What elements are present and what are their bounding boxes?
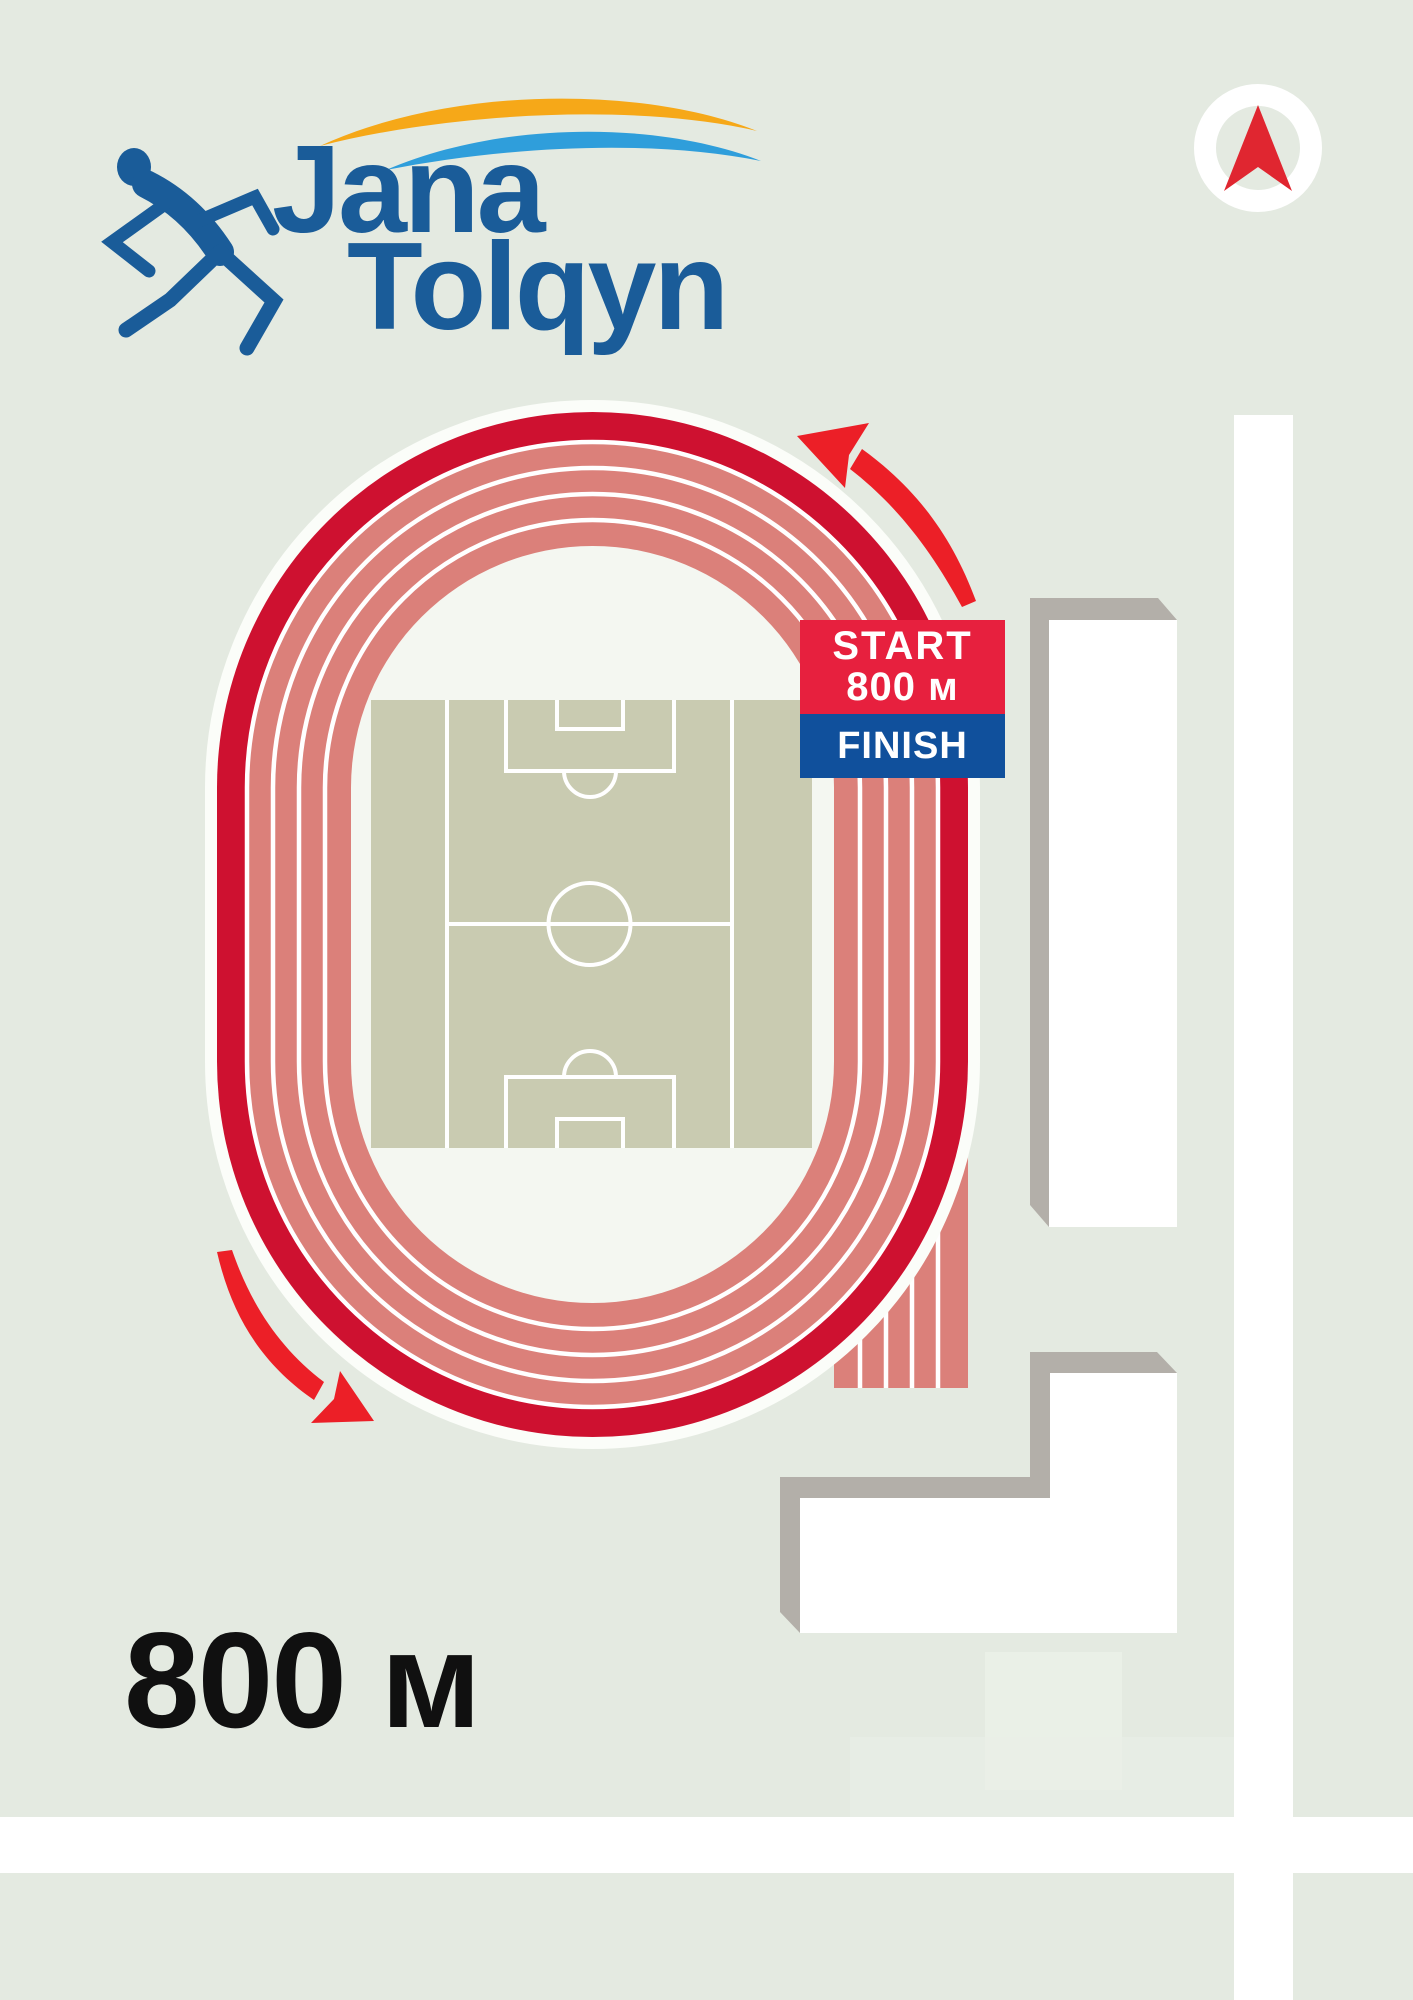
building-stand bbox=[1030, 598, 1177, 1227]
stadium-map: Jana Tolqyn START 800 м FINISH 800 м bbox=[0, 0, 1413, 2000]
ground-patches bbox=[850, 1652, 1235, 1817]
finish-badge-block: FINISH bbox=[800, 714, 1005, 778]
runner-silhouette-icon bbox=[112, 148, 274, 348]
logo-wordmark-line2: Tolqyn bbox=[347, 225, 726, 349]
start-distance-label: 800 м bbox=[846, 667, 958, 708]
football-field bbox=[371, 700, 812, 1148]
road-horizontal bbox=[0, 1817, 1413, 1873]
start-finish-badge: START 800 м FINISH bbox=[800, 620, 1005, 778]
road-vertical bbox=[1234, 415, 1293, 2000]
distance-title: 800 м bbox=[124, 1612, 479, 1748]
north-compass-icon bbox=[1205, 95, 1311, 201]
start-label: START bbox=[832, 626, 972, 667]
building-l-block bbox=[780, 1352, 1177, 1633]
start-badge-block: START 800 м bbox=[800, 620, 1005, 714]
finish-label: FINISH bbox=[837, 725, 968, 768]
